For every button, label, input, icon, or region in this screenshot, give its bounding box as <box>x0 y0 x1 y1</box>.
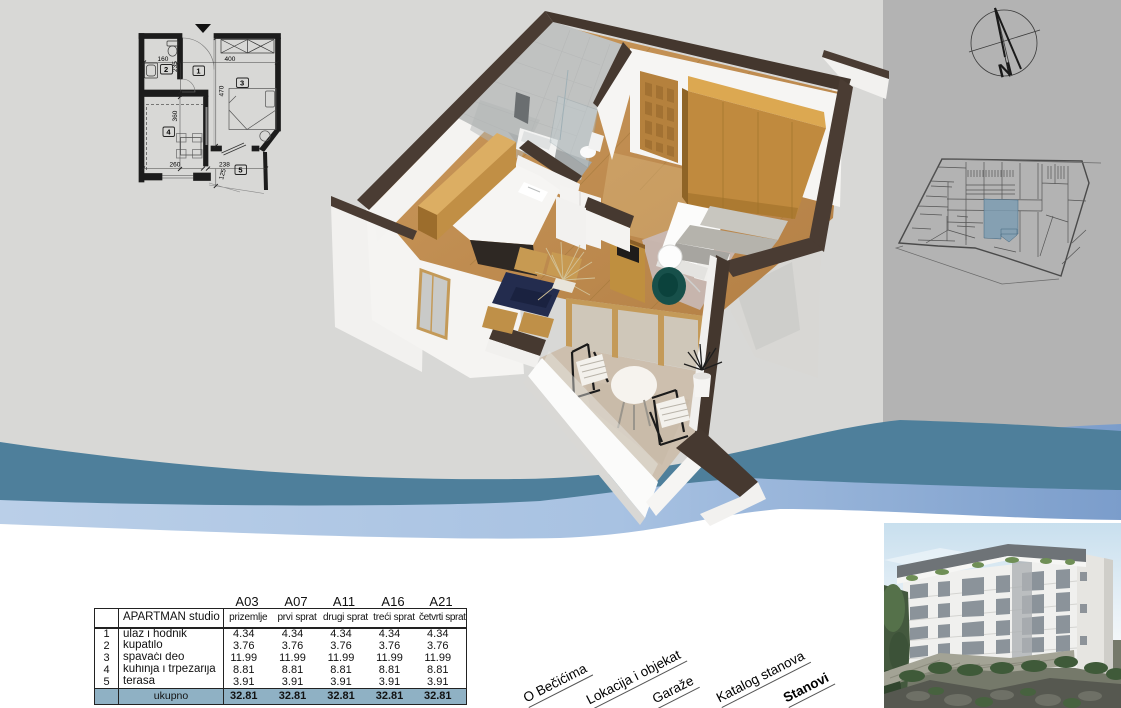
svg-text:2: 2 <box>164 65 168 74</box>
svg-text:360: 360 <box>172 110 179 121</box>
svg-text:4: 4 <box>166 128 171 137</box>
svg-text:1: 1 <box>196 67 200 76</box>
svg-text:N: N <box>996 59 1014 83</box>
svg-text:160: 160 <box>158 56 169 63</box>
svg-text:3: 3 <box>240 79 244 88</box>
svg-text:5: 5 <box>238 166 242 175</box>
svg-text:400: 400 <box>225 56 236 63</box>
svg-text:260: 260 <box>170 162 181 169</box>
svg-text:470: 470 <box>219 85 226 96</box>
svg-text:238: 238 <box>219 162 230 169</box>
svg-text:235: 235 <box>172 61 179 72</box>
svg-text:125: 125 <box>218 168 228 181</box>
